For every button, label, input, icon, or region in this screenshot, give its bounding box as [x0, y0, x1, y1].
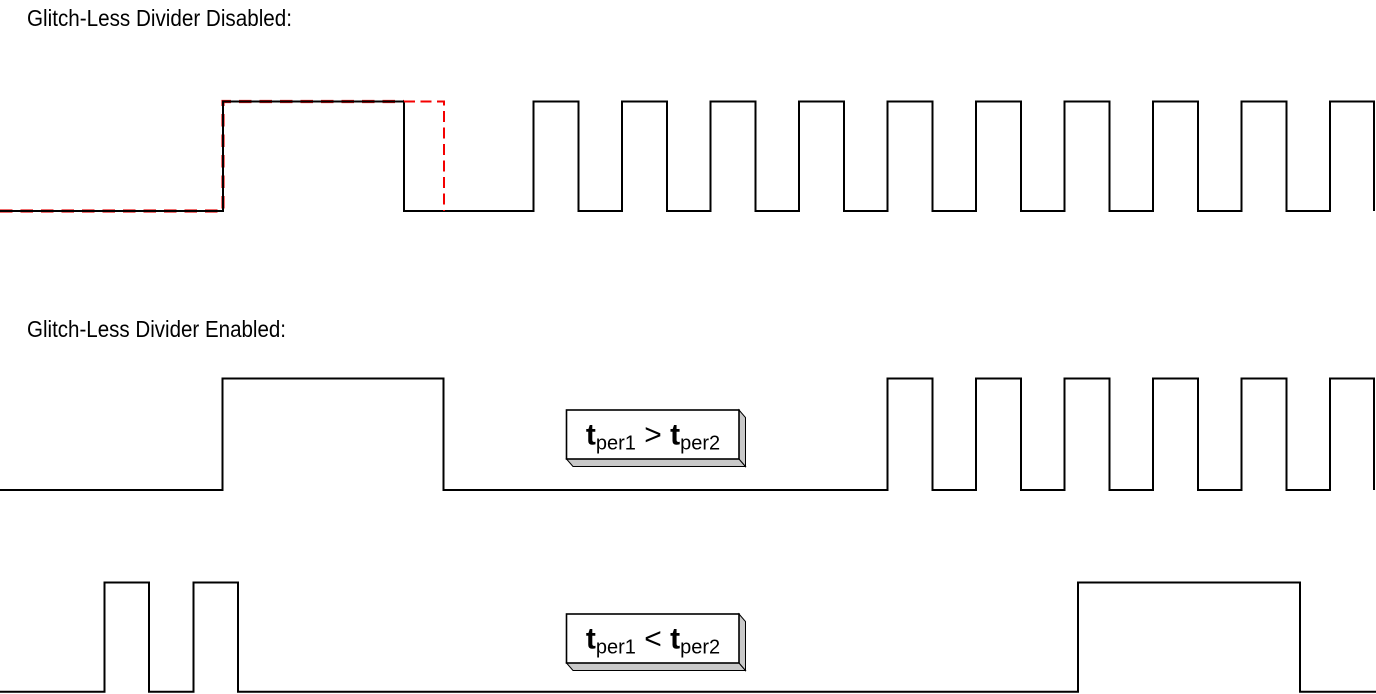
svg-text:Glitch-Less Divider Enabled:: Glitch-Less Divider Enabled:	[27, 316, 286, 342]
svg-text:Glitch-Less Divider Disabled:: Glitch-Less Divider Disabled:	[27, 5, 292, 31]
